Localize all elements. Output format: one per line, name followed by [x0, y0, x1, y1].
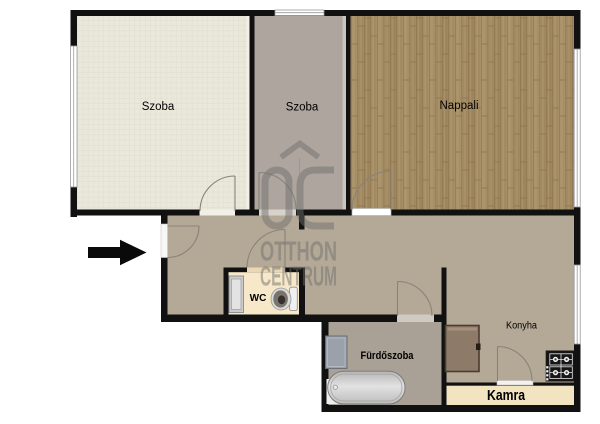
svg-text:Nappali: Nappali	[440, 100, 479, 112]
svg-text:Konyha: Konyha	[506, 321, 537, 332]
svg-text:Szoba: Szoba	[142, 101, 175, 113]
svg-text:Kamra: Kamra	[487, 388, 526, 404]
svg-text:CENTRUM: CENTRUM	[260, 260, 337, 291]
svg-text:WC: WC	[250, 293, 267, 304]
svg-text:Fürdőszoba: Fürdőszoba	[361, 350, 415, 362]
svg-text:Szoba: Szoba	[286, 102, 319, 114]
